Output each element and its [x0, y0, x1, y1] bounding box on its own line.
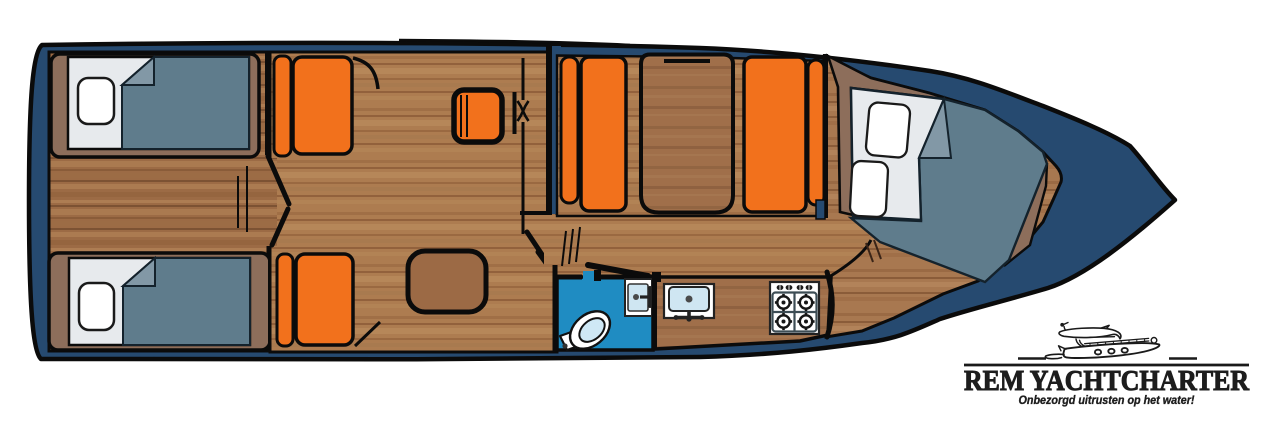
svg-text:Onbezorgd uitrusten op het wat: Onbezorgd uitrusten op het water! [1019, 393, 1195, 407]
